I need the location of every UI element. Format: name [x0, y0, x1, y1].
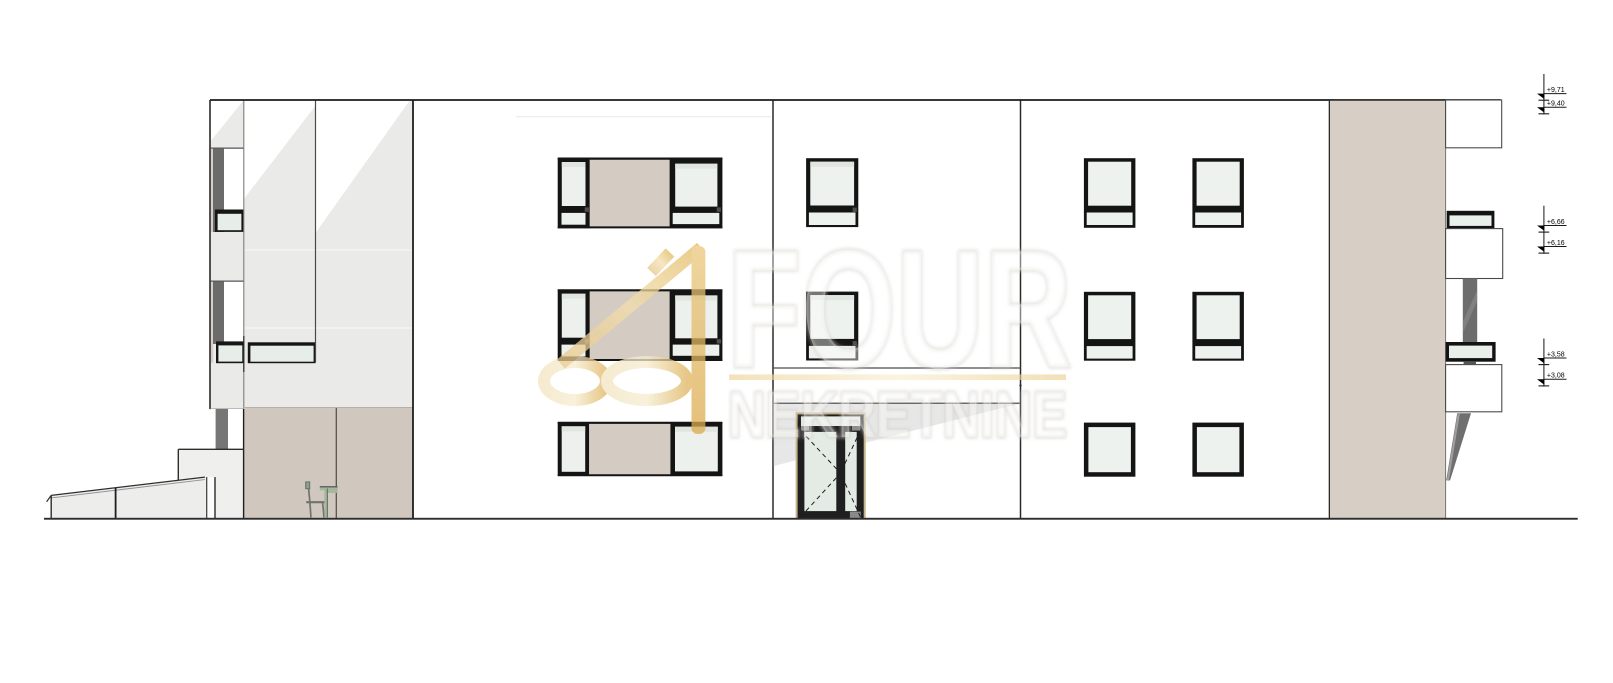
svg-text:+3,58: +3,58 — [1547, 351, 1565, 358]
svg-text:+9,40: +9,40 — [1547, 101, 1565, 108]
svg-text:+9,71: +9,71 — [1547, 87, 1565, 94]
svg-text:+6,66: +6,66 — [1547, 219, 1565, 226]
svg-text:NEKRETNINE: NEKRETNINE — [728, 378, 1067, 451]
svg-text:+6,16: +6,16 — [1547, 240, 1565, 247]
svg-text:+3,08: +3,08 — [1547, 373, 1565, 380]
